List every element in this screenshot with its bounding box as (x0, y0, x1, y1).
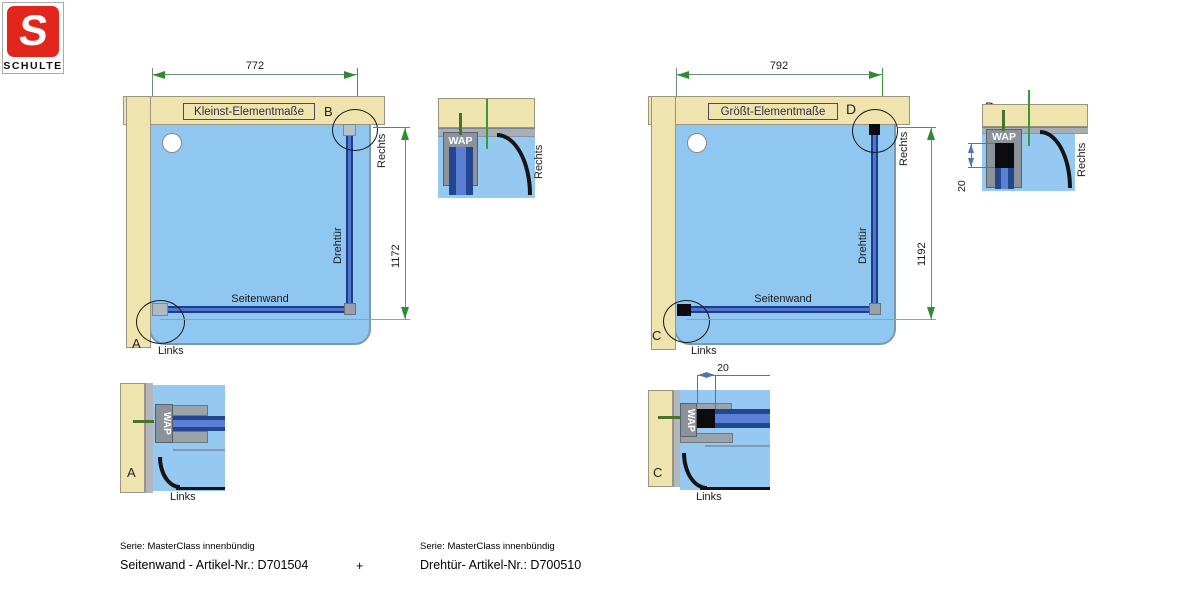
detail-b-ext-stub (459, 113, 462, 135)
links-label-right: Links (691, 345, 717, 357)
dim-792-arrow-right (869, 71, 881, 79)
detail-c-wap-label: WAP (685, 409, 696, 432)
dim-792-line (676, 74, 882, 75)
detail-d-door-glass (995, 168, 1014, 189)
detail-c-edge-line (705, 445, 770, 447)
detail-c-dim20-ext-right (715, 375, 716, 409)
right-diagram-title: Größt-Elementmaße (721, 106, 826, 118)
rechts-label-right: Rechts (898, 122, 910, 166)
schulte-logo-icon: S (7, 6, 59, 57)
left-diagram-title: Kleinst-Elementmaße (194, 106, 304, 118)
dim-1192-ext-bottom (686, 319, 936, 320)
detail-c-bottom-line (700, 487, 770, 490)
dim-1172-value: 1172 (390, 210, 402, 268)
detail-c-dim20-ext-left (697, 375, 698, 404)
detail-d-adjustment-block (995, 143, 1014, 168)
detail-a-wap-label: WAP (161, 412, 172, 435)
corner-connector-right (869, 303, 881, 315)
detail-a-ext-stub (133, 420, 154, 423)
detail-b-door-glass (449, 147, 473, 195)
detail-d-dim20-arrow-bottom (968, 158, 974, 167)
detail-c-side-label: Links (696, 491, 722, 503)
detail-d-wap-label: WAP (992, 131, 1016, 143)
detail-c-wall-glass (715, 409, 770, 428)
right-diagram-title-box: Größt-Elementmaße (708, 103, 838, 120)
logo-brand-text: SCHULTE (3, 60, 63, 72)
schulte-logo: S SCHULTE (2, 2, 64, 74)
dim-772-value: 772 (205, 60, 305, 72)
corner-connector-left (344, 303, 356, 315)
dim-1172-arrow-bottom (401, 307, 409, 319)
door-profile-right-diagram (871, 128, 878, 310)
detail-a-wall-glass (173, 416, 225, 431)
detail-a-wap-profile: WAP (155, 404, 173, 443)
door-label-right: Drehtür (857, 212, 869, 264)
footer-right-serie: Serie: MasterClass innenbündig (420, 541, 555, 552)
detail-a-label: A (127, 465, 136, 480)
detail-b-side-label: Rechts (533, 137, 545, 179)
detail-a-side-label: Links (170, 491, 196, 503)
detail-b-wap-label: WAP (449, 135, 473, 147)
detail-c-wall-strip (673, 390, 680, 487)
footer-plus: + (356, 559, 363, 573)
dim-772-arrow-right (344, 71, 356, 79)
detail-a-edge-line (173, 449, 225, 451)
detail-a-bottom-line (176, 487, 225, 490)
detail-d-ext-line (1028, 90, 1030, 146)
marker-a: A (132, 336, 141, 351)
technical-drawing-page: S SCHULTE 772 Kleinst-Elementmaße B Dreh… (0, 0, 1196, 600)
left-diagram-title-box: Kleinst-Elementmaße (183, 103, 315, 120)
detail-c-adjustment-block (697, 409, 715, 428)
detail-a-profile-arm-top (172, 405, 208, 416)
sidewall-profile-right-diagram (680, 306, 877, 313)
detail-d-dim20-arrow-top (968, 144, 974, 153)
detail-c-dim20-arrow-right (706, 372, 715, 378)
detail-a-wall-strip (145, 383, 153, 493)
wall-label-left: Seitenwand (210, 293, 310, 305)
detail-b-ext-line (486, 99, 488, 149)
door-profile-left-diagram (346, 128, 353, 310)
dim-772-line (152, 74, 357, 75)
logo-s-glyph: S (16, 10, 49, 53)
dim-1192-arrow-top (927, 128, 935, 140)
links-label-left: Links (158, 345, 184, 357)
detail-d-ext-stub (1002, 110, 1005, 131)
mounting-hole (162, 133, 182, 153)
detail-d-dim20-tick-bottom (968, 167, 995, 168)
dim-792-value: 792 (729, 60, 829, 72)
marker-d: D (846, 101, 856, 117)
detail-a-profile-arm-bottom (172, 431, 208, 443)
detail-circle-b (332, 109, 378, 151)
detail-circle-c (663, 300, 710, 343)
dim-1172-arrow-top (401, 128, 409, 140)
detail-c-wap-profile: WAP (680, 403, 697, 437)
detail-d-side-label: Rechts (1076, 135, 1088, 177)
dim-1192-value: 1192 (916, 208, 928, 266)
dim-1172-line (405, 127, 406, 320)
marker-c: C (652, 328, 661, 343)
marker-b: B (324, 104, 333, 119)
detail-d-wall (982, 104, 1088, 127)
footer-left-serie: Serie: MasterClass innenbündig (120, 541, 255, 552)
detail-c-ext-stub (658, 416, 680, 419)
detail-circle-d (852, 109, 898, 153)
detail-circle-a (136, 300, 185, 344)
door-label-left: Drehtür (332, 212, 344, 264)
sidewall-profile-left-diagram (155, 306, 352, 313)
detail-c-dim20-value: 20 (712, 362, 734, 374)
footer-left-article: Seitenwand - Artikel-Nr.: D701504 (120, 558, 308, 572)
detail-c-label: C (653, 465, 662, 480)
dim-1192-arrow-bottom (927, 307, 935, 319)
dim-1192-line (931, 127, 932, 320)
wall-label-right: Seitenwand (733, 293, 833, 305)
dim-1172-ext-bottom (160, 319, 410, 320)
mounting-hole-right (687, 133, 707, 153)
footer-right-article: Drehtür- Artikel-Nr.: D700510 (420, 558, 581, 572)
dim-772-arrow-left (153, 71, 165, 79)
detail-d-dim20-value: 20 (956, 168, 968, 192)
dim-792-arrow-left (677, 71, 689, 79)
